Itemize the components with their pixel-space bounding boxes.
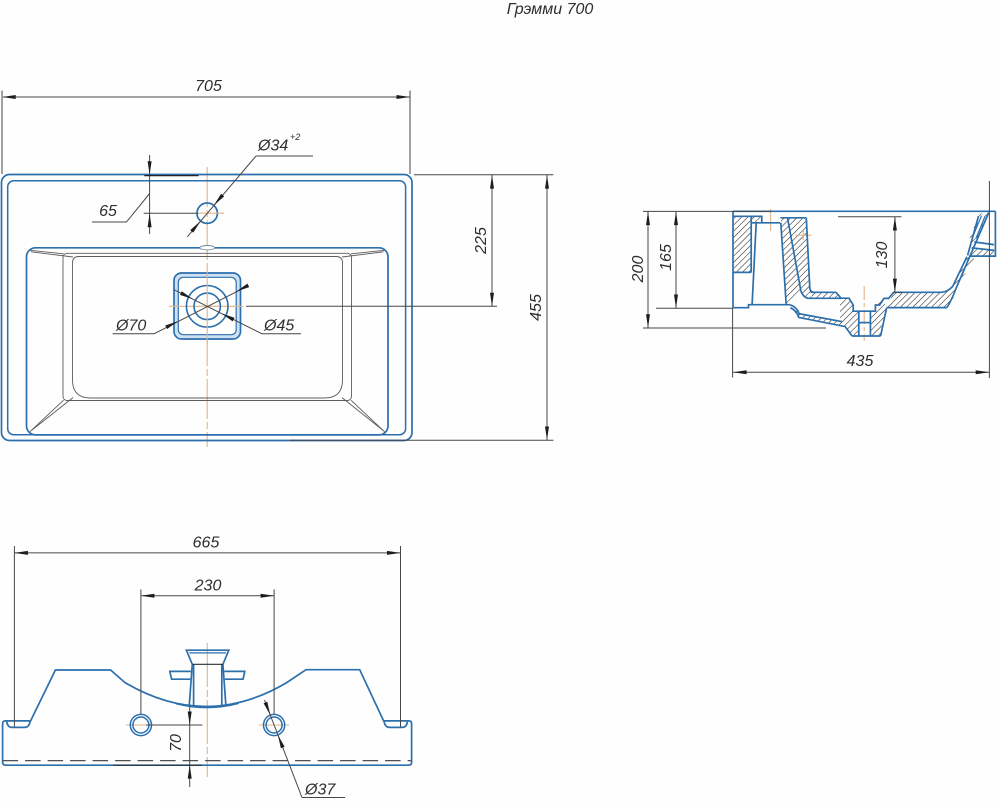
svg-text:435: 435: [847, 353, 874, 370]
svg-text:665: 665: [193, 535, 220, 552]
svg-text:Ø70: Ø70: [115, 318, 146, 335]
svg-text:Ø37: Ø37: [304, 782, 336, 799]
svg-text:230: 230: [194, 577, 222, 594]
svg-text:Ø34: Ø34: [257, 138, 288, 155]
svg-text:+2: +2: [290, 132, 300, 142]
svg-text:65: 65: [99, 203, 117, 220]
svg-text:455: 455: [528, 294, 545, 321]
svg-text:70: 70: [168, 734, 185, 752]
svg-text:225: 225: [473, 227, 490, 255]
svg-text:130: 130: [874, 242, 891, 269]
svg-text:Грэмми 700: Грэмми 700: [507, 1, 594, 18]
svg-text:165: 165: [658, 244, 675, 271]
svg-text:200: 200: [630, 256, 647, 284]
svg-text:Ø45: Ø45: [263, 318, 294, 335]
svg-text:705: 705: [195, 78, 222, 95]
